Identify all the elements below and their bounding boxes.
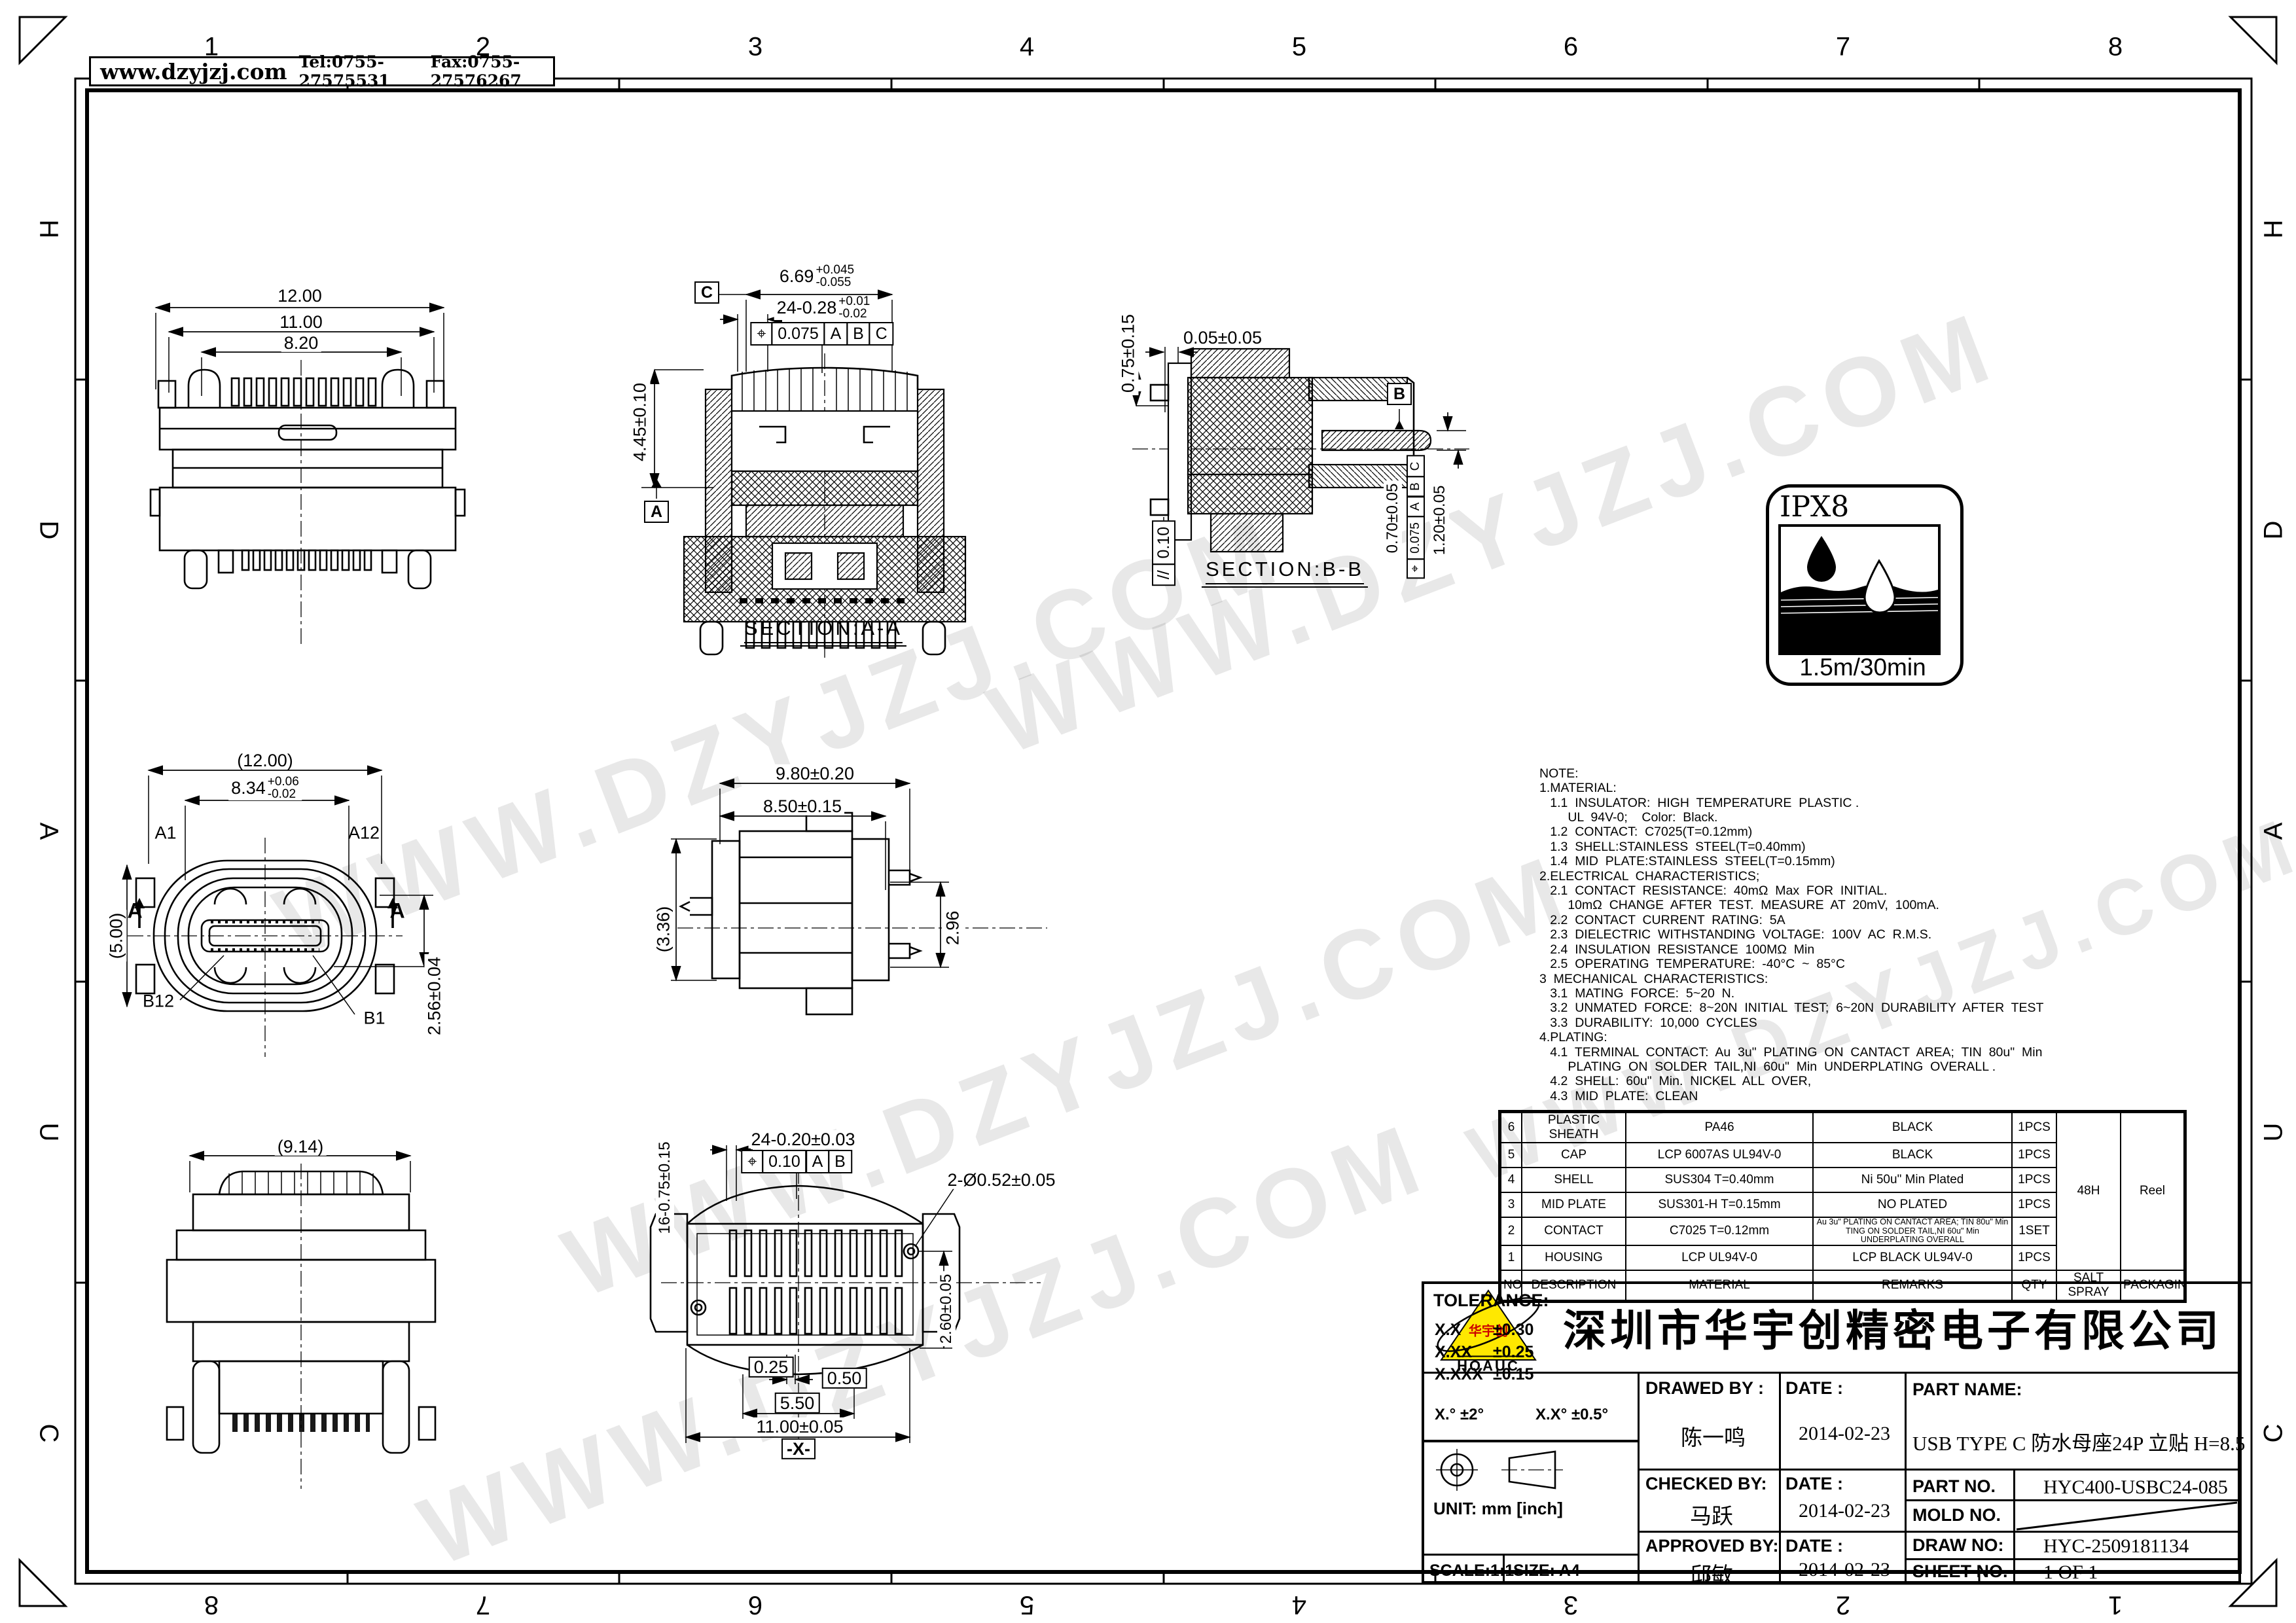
zone-col-bottom-8: 8	[204, 1590, 219, 1620]
dim-0-75: 0.75±0.15	[1119, 312, 1139, 395]
ipx8-picture	[1778, 524, 1941, 655]
zone-col-bottom-7: 7	[476, 1590, 490, 1620]
datum-x-label: -X-	[781, 1438, 816, 1459]
zone-col-bottom-3: 3	[1564, 1590, 1578, 1620]
view-rear2-linework	[157, 1132, 478, 1499]
zone-col-7: 7	[1836, 33, 1850, 62]
position-icon: ⌖	[1407, 559, 1425, 579]
dim-24-0-20: 24-0.20±0.03	[749, 1130, 858, 1149]
sheet-no-label: SHEET NO.	[1912, 1561, 2008, 1582]
parallelism-frame: //0.10	[1152, 520, 1175, 586]
approved-by-name: 邱敏	[1690, 1558, 1733, 1589]
sheet-no-value: 1 OF 1	[2043, 1561, 2098, 1584]
dim-0-50: 0.50	[822, 1368, 867, 1389]
company-name: 深圳市华宇创精密电子有限公司	[1563, 1296, 2223, 1359]
dim-4-45: 4.45±0.10	[630, 380, 651, 464]
water-drop-icon	[1807, 536, 1836, 582]
mold-no-label: MOLD NO.	[1912, 1505, 2001, 1525]
table-row: 6PLASTIC SHEATHPA46BLACK1PCS48HReel	[1501, 1113, 2184, 1143]
checked-by-label: CHECKED BY:	[1645, 1474, 1767, 1494]
draw-no-label: DRAW NO:	[1912, 1535, 2003, 1556]
fax: Fax:0755-27576267	[431, 52, 553, 90]
packaging-value: Reel	[2121, 1113, 2184, 1270]
part-name-label: PART NAME:	[1912, 1380, 2022, 1400]
projection-symbol-icon	[1431, 1449, 1627, 1491]
notes-block: NOTE:1.MATERIAL: 1.1 INSULATOR: HIGH TEM…	[1539, 737, 2089, 1133]
zone-row-left-4: U	[34, 1123, 63, 1142]
drawn-date: 2014-02-23	[1799, 1423, 1890, 1445]
salt-spray-value: 48H	[2056, 1113, 2121, 1270]
zone-col-5: 5	[1292, 33, 1306, 62]
cut-label-a-right: A	[389, 899, 404, 923]
view-front-linework	[118, 740, 537, 1080]
zone-row-right-5: C	[2259, 1424, 2289, 1443]
checked-by-name: 马跃	[1690, 1499, 1733, 1530]
dim-ref-3-36: (3.36)	[654, 904, 674, 955]
drawn-by-name: 陈一鸣	[1681, 1420, 1746, 1452]
zone-col-bottom-4: 4	[1292, 1590, 1306, 1620]
dim-12-00: 12.00	[275, 287, 325, 305]
part-name-value: USB TYPE C 防水母座24P 立贴 H=8.5	[1912, 1427, 2245, 1456]
position-icon: ⌖	[750, 322, 772, 346]
drawn-date-label: DATE :	[1785, 1378, 1843, 1399]
section-aa-label: SECTION:A-A	[740, 616, 906, 647]
dim-9-80: 9.80±0.20	[773, 764, 857, 783]
checked-date: 2014-02-23	[1799, 1500, 1890, 1522]
zone-row-left-1: H	[34, 220, 63, 239]
scale-label: SCALE:1:1	[1429, 1561, 1514, 1580]
drawn-by-label: DRAWED BY :	[1645, 1378, 1764, 1399]
dim-5-50: 5.50	[775, 1393, 820, 1414]
pin-a12-label: A12	[348, 823, 380, 844]
approved-date: 2014-02-23	[1799, 1559, 1890, 1581]
ipx8-badge: IPX8 1.5m/30min	[1766, 484, 1964, 686]
dim-ref-9-14: (9.14)	[275, 1137, 327, 1156]
dim-6-69: 6.69+0.045-0.055	[777, 264, 857, 289]
dim-2-96: 2.96	[943, 908, 963, 948]
zone-row-left-5: C	[34, 1424, 63, 1443]
zone-col-6: 6	[1564, 33, 1578, 62]
dim-2-holes: 2-Ø0.52±0.05	[945, 1171, 1058, 1189]
zone-col-4: 4	[1020, 33, 1034, 62]
pin-a1-label: A1	[154, 823, 176, 844]
size-label: SIZE: A4	[1513, 1561, 1580, 1580]
approved-date-label: DATE :	[1785, 1536, 1843, 1556]
zone-row-right-1: H	[2259, 220, 2289, 239]
dim-1-20: 1.20±0.05	[1431, 483, 1449, 558]
unit-label: UNIT: mm [inch]	[1433, 1499, 1563, 1519]
dim-16-pads: 16-0.75±0.15	[656, 1139, 674, 1236]
dim-8-50: 8.50±0.15	[761, 797, 844, 815]
dim-8-20: 8.20	[281, 334, 321, 352]
dim-ref-12: (12.00)	[234, 751, 296, 770]
dim-ref-5-00: (5.00)	[107, 910, 127, 962]
header-contact-box: www.dzyjzj.com Tel:0755-27575531 Fax:075…	[89, 56, 555, 86]
zone-row-left-3: A	[34, 823, 63, 840]
parallel-icon: //	[1152, 563, 1175, 586]
pin-b1-label: B1	[363, 1008, 385, 1029]
pin-b12-label: B12	[143, 991, 174, 1012]
part-no-value: HYC400-USBC24-085	[2043, 1476, 2228, 1499]
tolerance-label: TOLERANCE:	[1433, 1291, 1549, 1311]
zone-row-right-4: U	[2259, 1123, 2289, 1142]
approved-by-label: APPROVED BY:	[1645, 1536, 1779, 1556]
zone-col-bottom-1: 1	[2108, 1590, 2123, 1620]
part-no-label: PART NO.	[1912, 1476, 1996, 1497]
checked-date-label: DATE :	[1785, 1474, 1843, 1494]
dim-0-05: 0.05±0.05	[1181, 329, 1265, 347]
ipx8-title: IPX8	[1780, 490, 1849, 524]
telephone: Tel:0755-27575531	[299, 52, 419, 90]
zone-col-bottom-5: 5	[1020, 1590, 1034, 1620]
website: www.dzyjzj.com	[100, 59, 287, 84]
datum-b: B	[1387, 383, 1412, 405]
zone-col-bottom-2: 2	[1836, 1590, 1850, 1620]
zone-row-left-2: D	[34, 521, 63, 540]
dim-8-34: 8.34+0.06-0.02	[228, 776, 302, 800]
dim-11-00: 11.00±0.05	[754, 1418, 846, 1436]
datum-c: C	[694, 281, 719, 304]
position-tolerance-frame-aa: ⌖0.075ABC	[750, 322, 893, 346]
position-tolerance-frame-bottom: ⌖0.10AB	[741, 1150, 852, 1173]
zone-col-bottom-6: 6	[748, 1590, 762, 1620]
cut-label-a-left: A	[127, 899, 142, 923]
zone-col-8: 8	[2108, 33, 2123, 62]
view-side-linework	[655, 740, 1073, 1021]
draw-no-value: HYC-2509181134	[2043, 1535, 2189, 1558]
dim-2-60: 2.60±0.05	[937, 1272, 956, 1347]
water-drop-icon	[1865, 561, 1895, 613]
dim-24-0-28: 24-0.28+0.01-0.02	[774, 295, 873, 320]
title-block: 华宇创 HOAUC 深圳市华宇创精密电子有限公司 TOLERANCE: X.X …	[1422, 1281, 2241, 1584]
dim-2-56: 2.56±0.04	[425, 954, 445, 1038]
zone-row-right-3: A	[2259, 823, 2289, 840]
zone-row-right-2: D	[2259, 521, 2289, 540]
datum-a: A	[644, 501, 669, 523]
dim-11-00: 11.00	[277, 313, 325, 331]
position-icon: ⌖	[741, 1150, 763, 1173]
dim-0-70: 0.70±0.05	[1384, 481, 1402, 556]
section-bb-label: SECTION:B-B	[1202, 558, 1368, 588]
zone-col-3: 3	[748, 33, 762, 62]
position-tolerance-frame-bb: ⌖0.075ABC	[1407, 455, 1425, 579]
bom-table: 6PLASTIC SHEATHPA46BLACK1PCS48HReel 5CAP…	[1498, 1110, 2187, 1303]
dim-0-25: 0.25	[749, 1357, 794, 1378]
ipx8-rating: 1.5m/30min	[1769, 654, 1956, 681]
drawing-sheet: 1 2 3 4 5 6 7 8 8 7 6 5 4 3 2 1 H D A U …	[0, 0, 2296, 1623]
